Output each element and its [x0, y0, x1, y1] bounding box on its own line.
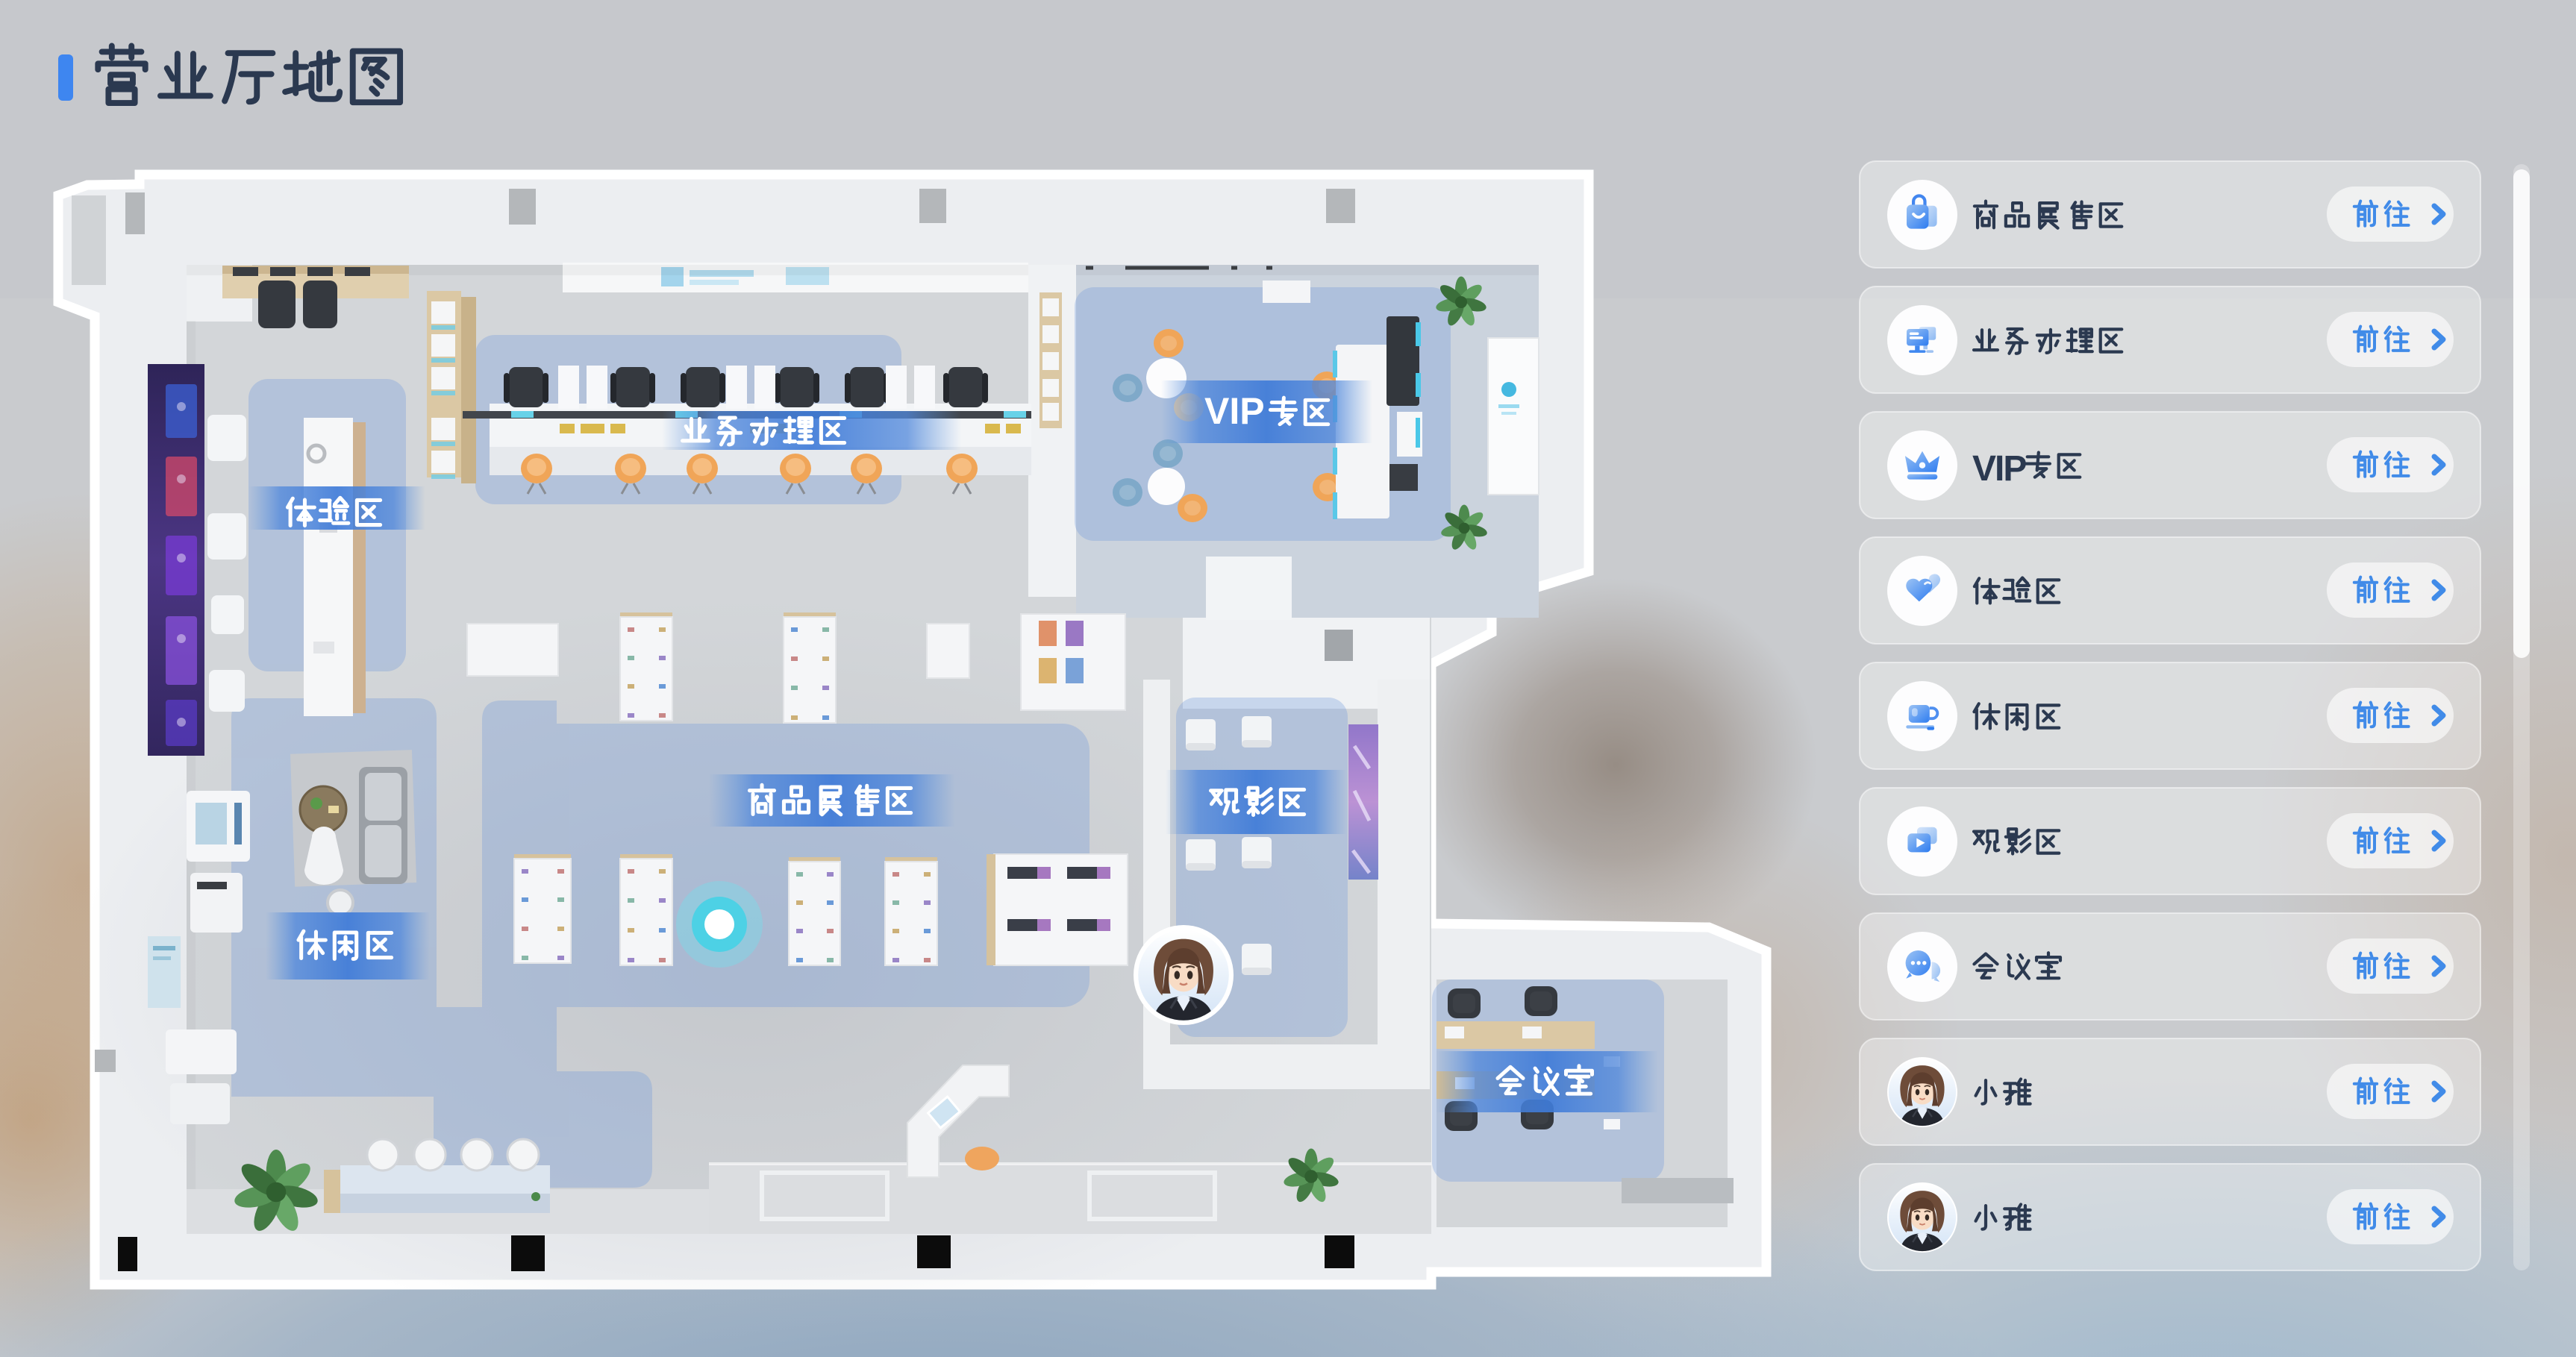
- svg-text:VIP: VIP: [1204, 390, 1265, 432]
- svg-text:VIP: VIP: [1972, 449, 2026, 489]
